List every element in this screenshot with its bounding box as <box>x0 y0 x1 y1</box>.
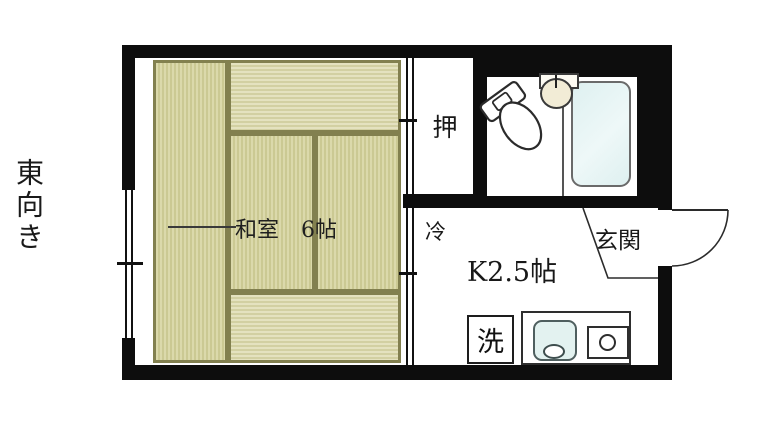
sink-drain-icon <box>543 344 565 359</box>
room-closet-label: 押 <box>432 108 457 144</box>
room-kitchen-label: K2.5帖 <box>467 250 557 289</box>
window-tick <box>117 262 143 265</box>
entrance-door-arc <box>672 210 728 266</box>
tatami-mat <box>228 292 401 363</box>
room-kitchen: 冷 K2.5帖 玄関 洗 <box>417 208 658 365</box>
kitchen-counter <box>521 311 631 365</box>
door-opening <box>658 210 672 266</box>
tatami-mat <box>153 60 228 363</box>
floor-plan: 和室 6帖 押 冷 K2.5帖 玄関 洗 <box>122 45 672 380</box>
stove-burner-icon <box>599 334 616 351</box>
sliding-door-symbol <box>403 58 417 365</box>
room-washitsu-label: 和室 6帖 <box>235 212 337 244</box>
washing-machine-label: 洗 <box>477 320 504 359</box>
tatami-mat <box>228 60 401 133</box>
room-washitsu: 和室 6帖 <box>135 58 403 365</box>
room-bathroom <box>487 77 637 196</box>
floor-plan-page: { "orientation": { "label": "東向き" }, "fl… <box>0 0 775 427</box>
bathtub-icon <box>571 81 631 187</box>
room-closet: 押 <box>417 58 473 194</box>
wall-segment <box>403 194 417 208</box>
orientation-label: 東向き <box>8 158 48 288</box>
fridge-space-label: 冷 <box>425 216 446 246</box>
entrance-label: 玄関 <box>595 221 641 255</box>
washing-machine-box: 洗 <box>467 315 514 364</box>
tap-icon <box>555 75 557 88</box>
label-leader-line <box>168 226 236 228</box>
